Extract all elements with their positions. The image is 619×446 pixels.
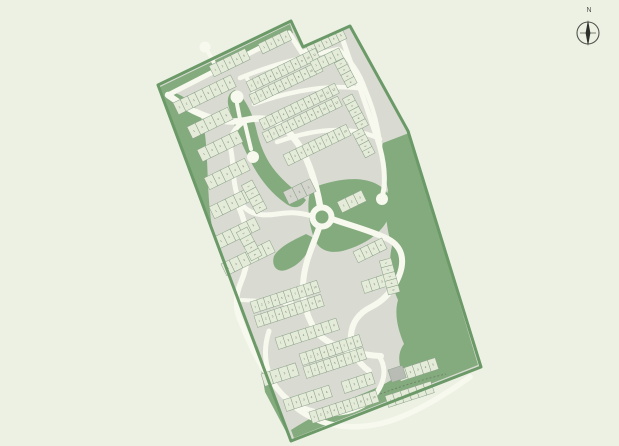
cul-de-sac	[200, 42, 211, 53]
site-plan-viewport: 1234567812345123412345123451234567891011…	[0, 0, 619, 446]
cul-de-sac	[247, 151, 259, 163]
compass-icon	[577, 20, 599, 46]
site-plan-svg: 1234567812345123412345123451234567891011…	[0, 0, 619, 446]
cul-de-sac	[231, 91, 244, 104]
roundabout-island	[318, 213, 326, 221]
compass-north-label: N	[584, 7, 594, 14]
cul-de-sac	[376, 193, 388, 205]
